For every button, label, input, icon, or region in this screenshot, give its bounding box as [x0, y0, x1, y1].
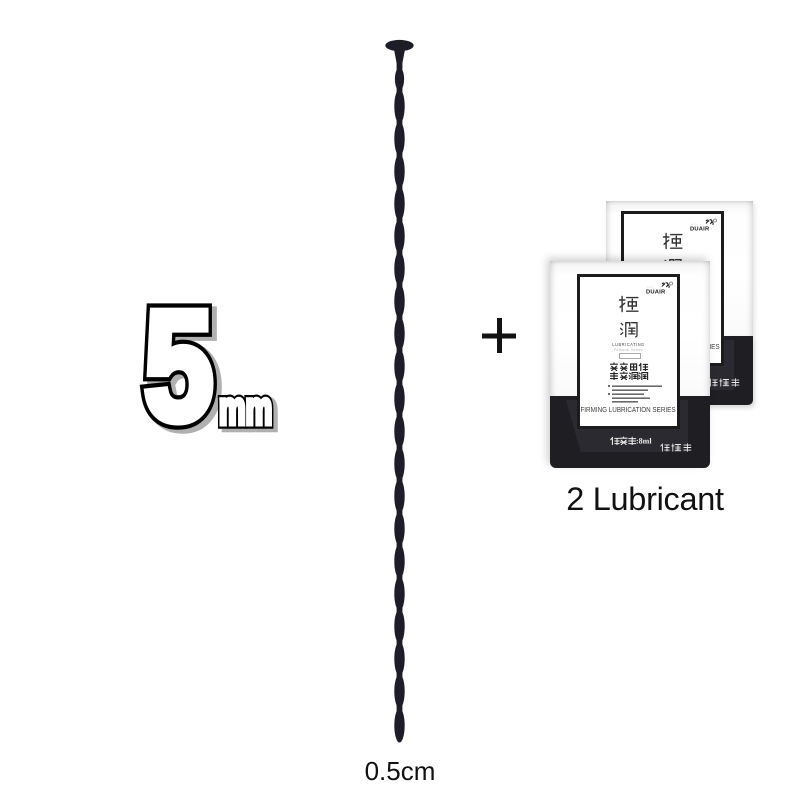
svg-text::8ml: :8ml — [636, 437, 652, 445]
svg-text:5: 5 — [144, 280, 213, 454]
svg-text:DUAIR: DUAIR — [690, 227, 710, 233]
svg-text:·····: ····· — [691, 222, 697, 226]
svg-text:mm: mm — [219, 382, 272, 434]
svg-text:DUAIR: DUAIR — [646, 289, 666, 295]
svg-text:·····: ····· — [647, 285, 653, 289]
